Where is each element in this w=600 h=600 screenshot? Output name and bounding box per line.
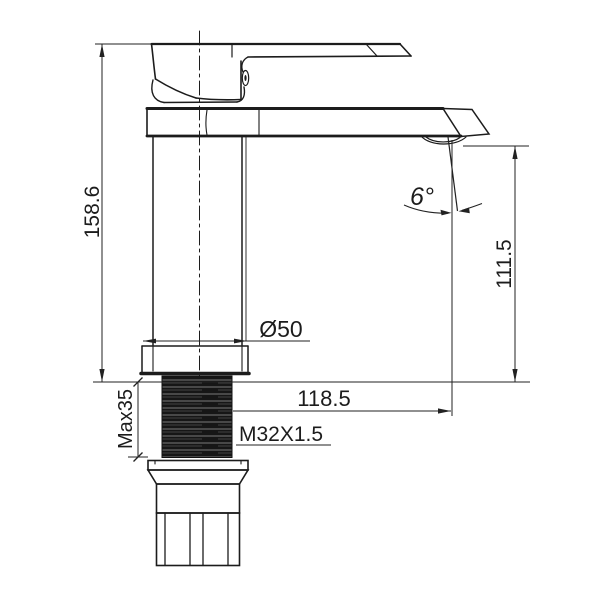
dim-overall-height: 158.6 xyxy=(81,44,151,382)
handle-lever xyxy=(152,44,412,86)
aerator-inner-dish xyxy=(426,137,460,142)
tailpiece-body xyxy=(157,484,240,513)
lever-curl-teardrop-core xyxy=(244,75,246,81)
dim-max-deck-thickness-label: Max35 xyxy=(115,389,137,449)
spout-body xyxy=(147,109,489,137)
handle-housing xyxy=(152,44,242,100)
lever-end-facet-line xyxy=(366,44,377,56)
lever-curl xyxy=(242,57,248,72)
faucet-outline xyxy=(141,31,489,566)
lever-bottom-edge xyxy=(248,56,411,57)
mounting-thread xyxy=(162,376,232,458)
arrow-up xyxy=(99,44,104,57)
outlet-slant-line xyxy=(448,137,458,211)
angle-arrow-right xyxy=(459,208,470,214)
dimension-annotations: 158.6 111.5 Ø50 118.5 M32X1.5 xyxy=(81,44,530,462)
tailpiece-chamfer xyxy=(148,470,248,484)
angle-arrow-left xyxy=(441,210,452,216)
dim-overall-height-label: 158.6 xyxy=(81,186,104,239)
dim-base-diameter: Ø50 xyxy=(143,316,310,343)
tailpiece-knurl-section xyxy=(157,513,240,566)
thread-shank xyxy=(162,376,232,458)
dome-bottom-edge xyxy=(164,102,237,103)
spout-contour-line-left xyxy=(206,110,207,135)
housing-bottom-edge xyxy=(196,98,241,100)
base-flange xyxy=(141,346,249,374)
arrow-left xyxy=(143,339,156,344)
dim-outlet-angle: 6° xyxy=(404,137,482,416)
housing-bottom-slant xyxy=(156,79,197,98)
dim-spout-reach: 118.5 xyxy=(233,386,451,414)
drawing-sheet: 158.6 111.5 Ø50 118.5 M32X1.5 xyxy=(0,0,600,600)
dim-spout-reach-label: 118.5 xyxy=(297,386,350,411)
tailpiece-flange xyxy=(148,461,248,471)
thread-spec-label: M32X1.5 xyxy=(239,423,323,446)
arrow-up xyxy=(512,146,517,159)
dim-outlet-angle-label: 6° xyxy=(410,183,434,211)
arrow-down xyxy=(99,369,104,382)
arrow-right xyxy=(438,408,451,413)
arrow-down xyxy=(512,369,517,382)
dim-max-deck-thickness: Max35 xyxy=(115,378,148,462)
lever-end-chamfer xyxy=(400,44,411,56)
faucet-technical-drawing: 158.6 111.5 Ø50 118.5 M32X1.5 xyxy=(0,0,600,600)
supply-tailpiece xyxy=(148,461,248,566)
dim-base-diameter-label: Ø50 xyxy=(259,316,302,342)
housing-left-edge xyxy=(152,44,156,79)
spout-tip-facet xyxy=(443,109,489,137)
dim-outlet-height-label: 111.5 xyxy=(493,239,516,288)
arrow-right xyxy=(234,339,247,344)
dim-outlet-height: 111.5 xyxy=(463,146,529,382)
label-thread-spec: M32X1.5 xyxy=(236,423,331,446)
